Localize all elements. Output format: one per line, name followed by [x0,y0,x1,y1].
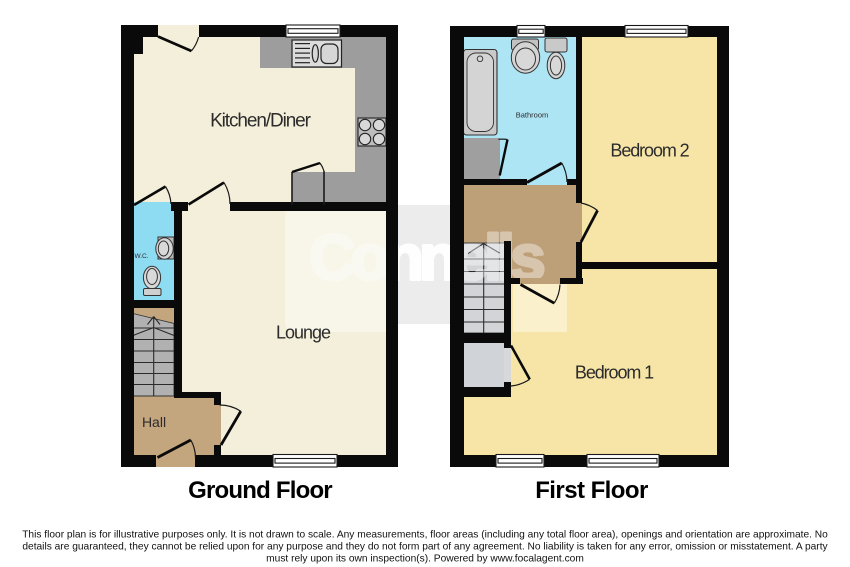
svg-text:W.C.: W.C. [134,253,148,260]
svg-text:Bedroom 1: Bedroom 1 [575,363,654,383]
svg-text:must rely upon its own inspect: must rely upon its own inspection(s). Po… [266,554,584,565]
svg-text:Bedroom 2: Bedroom 2 [610,141,689,161]
svg-text:Lounge: Lounge [276,323,331,343]
svg-text:Kitchen/Diner: Kitchen/Diner [210,111,312,132]
svg-text:details are guaranteed, they c: details are guaranteed, they cannot be r… [22,542,828,553]
svg-text:Hall: Hall [142,414,166,430]
svg-text:This floor plan is for illustr: This floor plan is for illustrative purp… [22,530,828,541]
svg-text:Ground Floor: Ground Floor [188,477,332,504]
svg-text:First Floor: First Floor [535,477,648,504]
svg-text:Bathroom: Bathroom [516,111,549,120]
